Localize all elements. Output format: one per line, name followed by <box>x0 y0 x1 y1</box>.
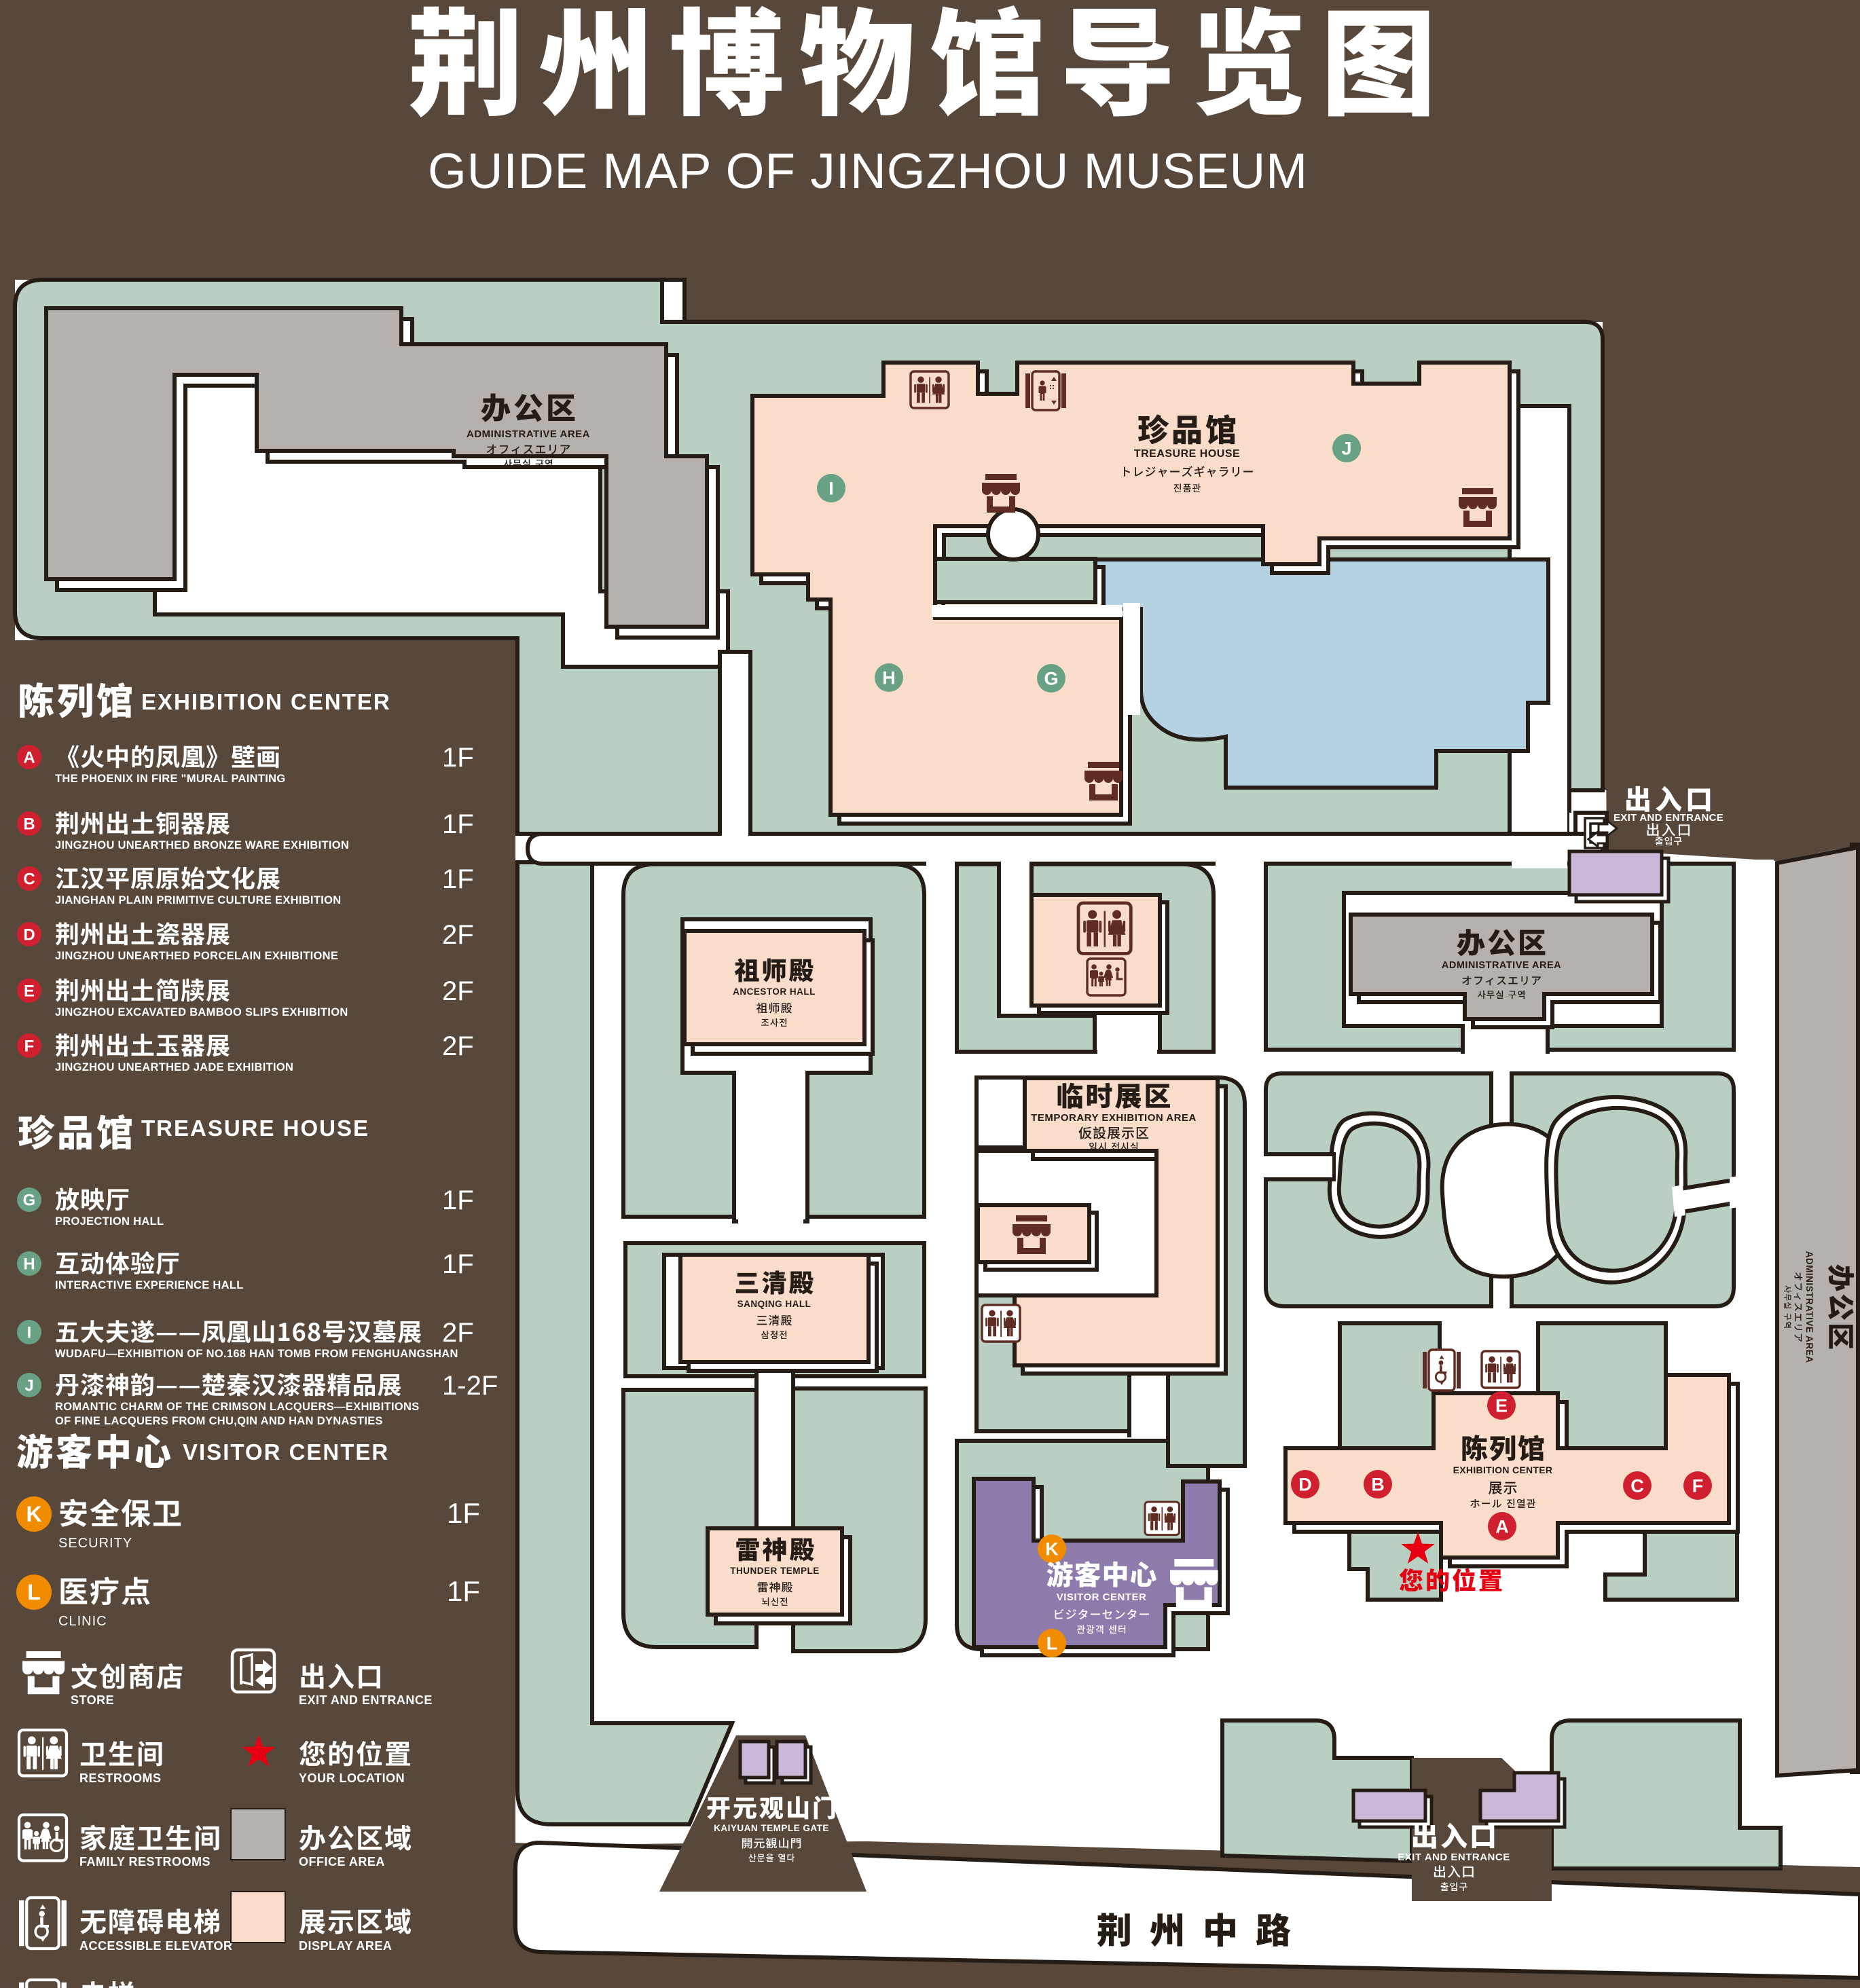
svg-text:SECURITY: SECURITY <box>58 1536 132 1551</box>
svg-text:PROJECTION HALL: PROJECTION HALL <box>55 1215 164 1228</box>
svg-text:EXIT AND ENTRANCE: EXIT AND ENTRANCE <box>299 1693 433 1707</box>
svg-text:GUIDE MAP OF JINGZHOU MUSEUM: GUIDE MAP OF JINGZHOU MUSEUM <box>428 144 1308 199</box>
svg-text:F: F <box>1692 1476 1704 1496</box>
svg-text:A: A <box>1495 1517 1509 1537</box>
svg-text:G: G <box>1044 669 1058 689</box>
svg-text:2F: 2F <box>442 1318 474 1348</box>
svg-text:OF FINE LACQUERS FROM CHU,QIN: OF FINE LACQUERS FROM CHU,QIN AND HAN DY… <box>55 1415 383 1427</box>
svg-text:ADMINISTRATIVE AREA: ADMINISTRATIVE AREA <box>1442 960 1561 971</box>
svg-text:B: B <box>23 815 35 834</box>
svg-text:FAMILY RESTROOMS: FAMILY RESTROOMS <box>79 1855 211 1869</box>
svg-text:TREASURE HOUSE: TREASURE HOUSE <box>1134 448 1240 460</box>
svg-text:J: J <box>1341 439 1351 459</box>
svg-text:E: E <box>24 982 35 1001</box>
svg-text:G: G <box>23 1192 36 1210</box>
svg-text:ROMANTIC CHARM OF THE CRIMSON: ROMANTIC CHARM OF THE CRIMSON LACQUERS—E… <box>55 1401 420 1413</box>
svg-text:C: C <box>1630 1476 1644 1496</box>
svg-text:1F: 1F <box>447 1575 480 1607</box>
svg-text:JIANGHAN PLAIN PRIMITIVE CULTU: JIANGHAN PLAIN PRIMITIVE CULTURE EXHIBIT… <box>55 894 341 906</box>
svg-text:CLINIC: CLINIC <box>58 1614 107 1629</box>
svg-text:YOUR LOCATION: YOUR LOCATION <box>299 1771 405 1785</box>
svg-text:1F: 1F <box>442 1185 474 1215</box>
svg-text:J: J <box>24 1377 33 1395</box>
svg-text:INTERACTIVE EXPERIENCE HALL: INTERACTIVE EXPERIENCE HALL <box>55 1279 244 1291</box>
svg-text:B: B <box>1371 1475 1385 1495</box>
svg-text:I: I <box>27 1324 32 1342</box>
svg-text:ADMINISTRATIVE AREA: ADMINISTRATIVE AREA <box>467 428 590 440</box>
svg-text:THUNDER TEMPLE: THUNDER TEMPLE <box>730 1566 820 1576</box>
svg-text:EXIT AND ENTRANCE: EXIT AND ENTRANCE <box>1613 812 1724 824</box>
svg-text:EXIT AND ENTRANCE: EXIT AND ENTRANCE <box>1398 1852 1510 1863</box>
svg-text:JINGZHOU EXCAVATED BAMBOO SLIP: JINGZHOU EXCAVATED BAMBOO SLIPS EXHIBITI… <box>55 1006 348 1018</box>
svg-text:E: E <box>1495 1396 1508 1416</box>
svg-text:WUDAFU—EXHIBITION OF NO.168 HA: WUDAFU—EXHIBITION OF NO.168 HAN TOMB FRO… <box>55 1348 458 1360</box>
svg-text:TREASURE HOUSE: TREASURE HOUSE <box>141 1116 369 1141</box>
svg-text:2F: 2F <box>442 920 474 950</box>
svg-text:2F: 2F <box>442 976 474 1006</box>
svg-text:OFFICE AREA: OFFICE AREA <box>299 1855 385 1869</box>
svg-text:D: D <box>23 926 35 944</box>
svg-text:2F: 2F <box>442 1031 474 1061</box>
svg-text:KAIYUAN TEMPLE GATE: KAIYUAN TEMPLE GATE <box>714 1823 829 1833</box>
svg-text:L: L <box>1046 1634 1058 1654</box>
svg-text:1-2F: 1-2F <box>442 1371 498 1401</box>
svg-text:RESTROOMS: RESTROOMS <box>79 1771 162 1785</box>
svg-text:D: D <box>1298 1475 1312 1495</box>
svg-text:DISPLAY AREA: DISPLAY AREA <box>299 1939 392 1953</box>
svg-text:THE PHOENIX IN FIRE "MURAL PAI: THE PHOENIX IN FIRE "MURAL PAINTING <box>55 773 285 785</box>
svg-text:H: H <box>23 1255 35 1274</box>
svg-text:ACCESSIBLE ELEVATOR: ACCESSIBLE ELEVATOR <box>79 1939 233 1953</box>
svg-text:VISITOR CENTER: VISITOR CENTER <box>183 1439 389 1465</box>
svg-text:1F: 1F <box>442 1249 474 1279</box>
svg-text:JINGZHOU UNEARTHED PORCELAIN E: JINGZHOU UNEARTHED PORCELAIN EXHIBITIONE <box>55 950 338 962</box>
svg-text:STORE: STORE <box>71 1693 114 1707</box>
svg-text:F: F <box>24 1037 35 1056</box>
svg-text:H: H <box>882 668 896 688</box>
svg-text:SANQING HALL: SANQING HALL <box>737 1299 812 1309</box>
svg-text:1F: 1F <box>442 864 474 894</box>
svg-text:I: I <box>828 479 834 499</box>
svg-text:ANCESTOR HALL: ANCESTOR HALL <box>733 987 816 997</box>
svg-text:A: A <box>23 749 35 767</box>
svg-text:EXHIBITION CENTER: EXHIBITION CENTER <box>141 689 391 714</box>
svg-text:JINGZHOU UNEARTHED BRONZE WARE: JINGZHOU UNEARTHED BRONZE WARE EXHIBITIO… <box>55 839 349 851</box>
svg-text:VISITOR CENTER: VISITOR CENTER <box>1057 1591 1147 1603</box>
svg-text:ADMINISTRATIVE AREA: ADMINISTRATIVE AREA <box>1804 1251 1815 1363</box>
svg-text:C: C <box>23 870 35 889</box>
svg-text:L: L <box>27 1580 41 1604</box>
svg-text:1F: 1F <box>442 809 474 839</box>
svg-text:K: K <box>26 1502 41 1526</box>
svg-text:EXHIBITION CENTER: EXHIBITION CENTER <box>1453 1465 1553 1475</box>
svg-text:1F: 1F <box>442 743 474 773</box>
svg-text:TEMPORARY EXHIBITION AREA: TEMPORARY EXHIBITION AREA <box>1031 1112 1197 1124</box>
svg-text:1F: 1F <box>447 1497 480 1529</box>
svg-text:K: K <box>1045 1539 1059 1560</box>
svg-text:JINGZHOU UNEARTHED JADE EXHIBI: JINGZHOU UNEARTHED JADE EXHIBITION <box>55 1061 293 1073</box>
